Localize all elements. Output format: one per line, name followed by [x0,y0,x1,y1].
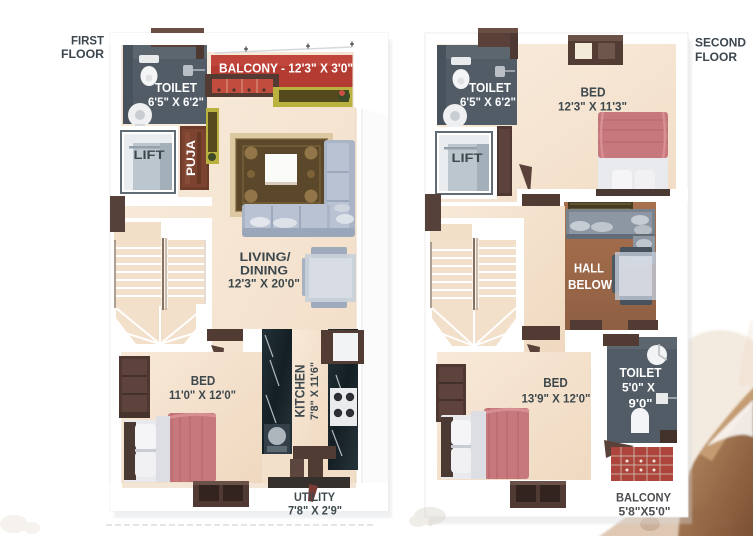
svg-text:LIFT: LIFT [134,148,166,162]
svg-text:HALL: HALL [574,261,604,276]
svg-text:9'0": 9'0" [629,399,653,411]
svg-text:11'0" X 12'0": 11'0" X 12'0" [169,390,236,402]
svg-text:12'3" X 20'0": 12'3" X 20'0" [228,279,300,291]
svg-text:12'3" X 11'3": 12'3" X 11'3" [558,102,627,114]
svg-text:TOILET: TOILET [469,81,511,95]
svg-text:5'8"X5'0": 5'8"X5'0" [619,507,671,519]
svg-text:BED: BED [543,376,568,390]
svg-text:TOILET: TOILET [620,366,662,380]
svg-text:BALCONY - 12'3" X 3'0": BALCONY - 12'3" X 3'0" [219,61,353,76]
svg-text:BELOW: BELOW [568,277,613,292]
svg-text:LIFT: LIFT [452,151,484,165]
svg-text:FIRST: FIRST [71,36,104,48]
svg-text:BALCONY: BALCONY [616,491,671,505]
svg-text:PUJA: PUJA [186,140,198,176]
svg-text:FLOOR: FLOOR [61,49,105,61]
svg-text:UTILITY: UTILITY [294,490,335,504]
svg-text:BED: BED [191,374,216,388]
svg-text:KITCHEN: KITCHEN [293,365,308,418]
svg-text:6'5" X 6'2": 6'5" X 6'2" [460,97,516,109]
svg-text:6'5" X 6'2": 6'5" X 6'2" [148,97,204,109]
svg-text:5'0" X: 5'0" X [622,383,655,395]
svg-text:7'8" X 2'9": 7'8" X 2'9" [288,506,342,518]
svg-text:FLOOR: FLOOR [695,52,738,64]
svg-text:LIVING/: LIVING/ [240,250,292,264]
svg-text:13'9" X 12'0": 13'9" X 12'0" [522,394,591,406]
svg-text:SECOND: SECOND [695,38,746,50]
svg-text:DINING: DINING [240,264,288,278]
svg-text:7'8" X 11'6": 7'8" X 11'6" [309,362,321,420]
svg-text:TOILET: TOILET [155,81,197,95]
svg-text:BED: BED [581,86,606,100]
